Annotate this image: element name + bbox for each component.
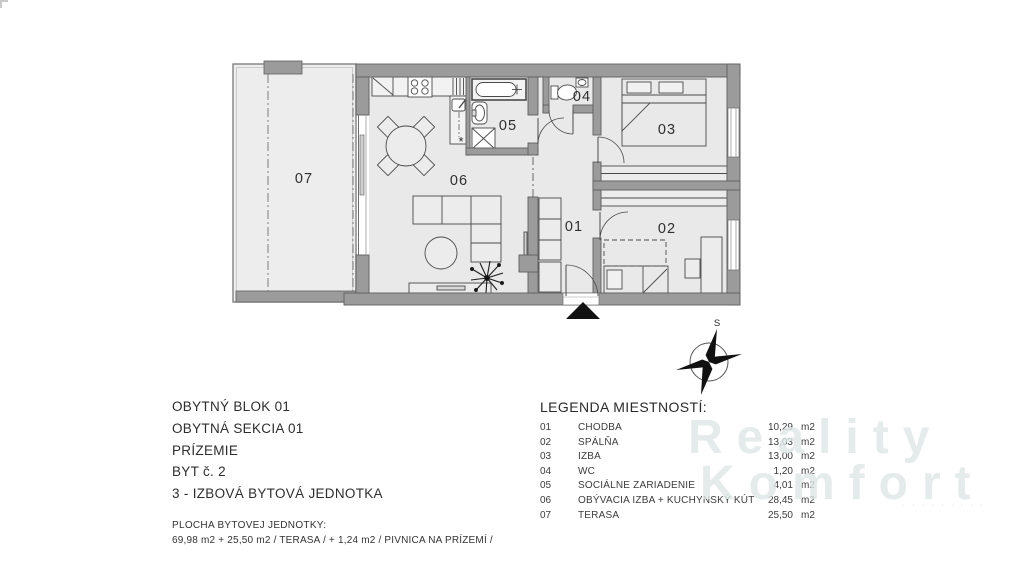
legend-row: 06 OBÝVACIA IZBA + KUCHYNSKÝ KÚT 28,45 m…	[540, 495, 840, 510]
info-line-section: OBYTNÁ SEKCIA 01	[172, 418, 493, 440]
legend-row: 02 SPÁLŇA 13,03 m2	[540, 437, 840, 452]
legend-room-name: SPÁLŇA	[578, 437, 753, 448]
room-legend: LEGENDA MIESTNOSTÍ: 01 CHODBA 10,29 m2 0…	[540, 399, 840, 524]
legend-room-unit: m2	[801, 495, 831, 506]
legend-room-unit: m2	[801, 466, 831, 477]
legend-room-unit: m2	[801, 437, 831, 448]
legend-row: 04 WC 1,20 m2	[540, 466, 840, 481]
legend-room-unit: m2	[801, 422, 831, 433]
legend-room-unit: m2	[801, 451, 831, 462]
legend-row: 07 TERASA 25,50 m2	[540, 510, 840, 525]
legend-room-name: SOCIÁLNE ZARIADENIE	[578, 480, 753, 491]
legend-row: 03 IZBA 13,00 m2	[540, 451, 840, 466]
scan-artifact	[0, 0, 2, 8]
legend-room-area: 28,45	[753, 495, 793, 506]
legend-room-number: 04	[540, 466, 578, 477]
legend-room-name: WC	[578, 466, 753, 477]
legend-room-name: OBÝVACIA IZBA + KUCHYNSKÝ KÚT	[578, 495, 753, 506]
info-line-floor: PRÍZEMIE	[172, 440, 493, 462]
area-summary-value: 69,98 m2 + 25,50 m2 / TERASA / + 1,24 m2…	[172, 533, 493, 548]
legend-room-area: 4,01	[753, 480, 793, 491]
legend-row: 01 CHODBA 10,29 m2	[540, 422, 840, 437]
legend-room-unit: m2	[801, 480, 831, 491]
legend-room-area: 1,20	[753, 466, 793, 477]
legend-room-area: 25,50	[753, 510, 793, 521]
legend-room-area: 10,29	[753, 422, 793, 433]
watermark-tagline: · · · · · · · · ·	[903, 503, 985, 509]
legend-room-name: TERASA	[578, 510, 753, 521]
legend-room-name: IZBA	[578, 451, 753, 462]
legend-room-number: 01	[540, 422, 578, 433]
legend-room-name: CHODBA	[578, 422, 753, 433]
legend-room-area: 13,00	[753, 451, 793, 462]
info-line-block: OBYTNÝ BLOK 01	[172, 396, 493, 418]
area-summary-label: PLOCHA BYTOVEJ JEDNOTKY:	[172, 518, 493, 533]
floor-plan-page: 07 06 05 04 01 03 02 * S OBYTNÝ BLOK 01 …	[0, 0, 1011, 570]
legend-room-number: 02	[540, 437, 578, 448]
legend-room-number: 03	[540, 451, 578, 462]
legend-row: 05 SOCIÁLNE ZARIADENIE 4,01 m2	[540, 480, 840, 495]
legend-room-number: 07	[540, 510, 578, 521]
building-info-block: OBYTNÝ BLOK 01 OBYTNÁ SEKCIA 01 PRÍZEMIE…	[172, 396, 493, 548]
legend-room-number: 06	[540, 495, 578, 506]
legend-title: LEGENDA MIESTNOSTÍ:	[540, 399, 840, 415]
text-layer: OBYTNÝ BLOK 01 OBYTNÁ SEKCIA 01 PRÍZEMIE…	[0, 0, 1011, 570]
info-line-unit-type: 3 - IZBOVÁ BYTOVÁ JEDNOTKA	[172, 483, 493, 505]
info-line-apartment: BYT č. 2	[172, 461, 493, 483]
area-summary: PLOCHA BYTOVEJ JEDNOTKY: 69,98 m2 + 25,5…	[172, 518, 493, 548]
legend-room-number: 05	[540, 480, 578, 491]
legend-room-unit: m2	[801, 510, 831, 521]
legend-room-area: 13,03	[753, 437, 793, 448]
